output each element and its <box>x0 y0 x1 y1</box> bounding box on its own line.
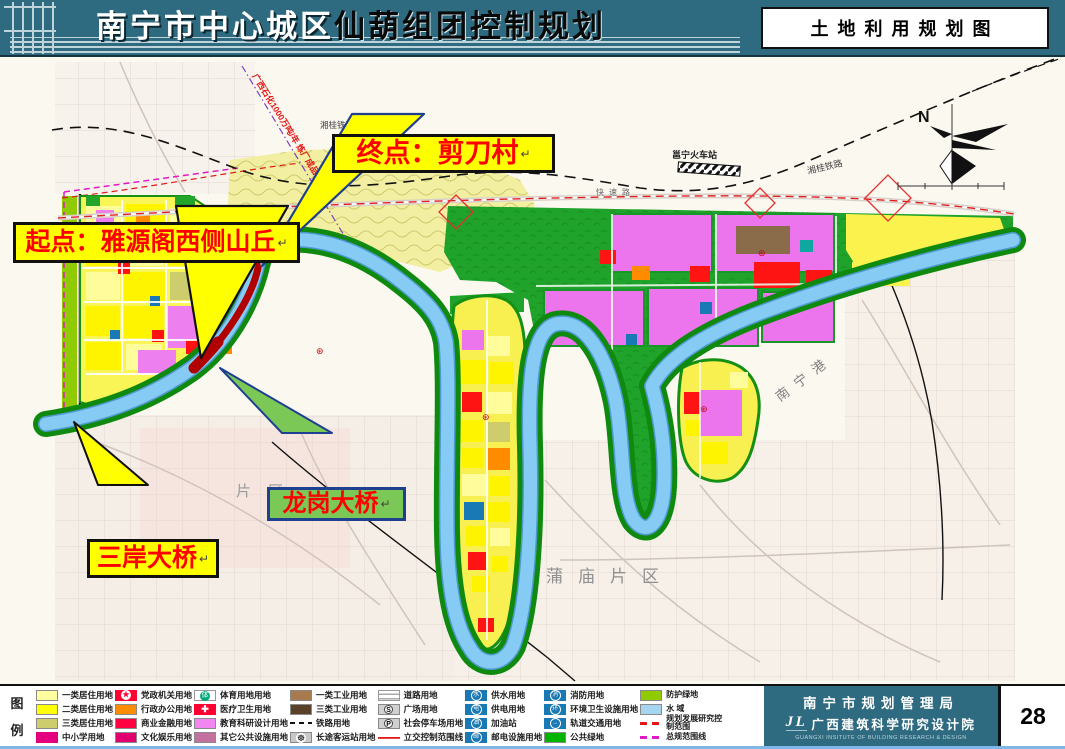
railway-station-label: 邕宁火车站 <box>672 149 717 160</box>
legend-label: 立交控制范围线 <box>404 731 464 743</box>
svg-text:⊛: ⊛ <box>700 404 708 414</box>
legend-swatch-glyph: 消 <box>550 690 561 701</box>
north-label: N <box>918 109 930 126</box>
legend-label: 消防用地 <box>570 689 604 701</box>
institute-name-en: GUANGXI INSITUTE OF BUILDING RESEARCH & … <box>795 735 967 741</box>
legend-label: 水 域 <box>666 705 728 713</box>
legend-swatch <box>290 704 312 715</box>
map-area: 广西石化1000万吨/年 炼厂成品油管线 N 邕宁火车站 湘桂铁路 湘桂铁路 <box>0 57 1065 684</box>
legend-item: P 社会停车场用地 <box>378 716 464 730</box>
legend-swatch <box>640 690 662 701</box>
legend-bar: 图 例 一类居住用地 二类居住用地 三类居住用地 ⊛⊛ 中小学用地 ★ 党政机关… <box>0 684 1065 746</box>
legend-column: 一类工业用地 三类工业用地 铁路用地 ☸ 长途客运站用地 <box>290 688 376 744</box>
legend-swatch: ⊛⊛ <box>36 732 58 743</box>
legend-item: 文化娱乐用地 <box>115 730 192 744</box>
page-number: 28 <box>1020 703 1046 730</box>
legend-swatch <box>36 704 58 715</box>
legend-item: 二类居住用地 <box>36 702 113 716</box>
return-mark: ↵ <box>199 553 209 565</box>
legend-swatch: 体 <box>194 690 216 701</box>
legend-label: 供电用地 <box>491 703 525 715</box>
legend-swatch-glyph: 环 <box>550 704 561 715</box>
legend-item: 三类工业用地 <box>290 702 376 716</box>
legend-swatch-glyph: ☸ <box>296 733 306 743</box>
legend-swatch-glyph: ✚ <box>194 704 216 715</box>
legend-item: S 广场用地 <box>378 702 464 716</box>
legend-swatch <box>36 690 58 701</box>
legend-label: 医疗卫生用地 <box>220 703 271 715</box>
legend-title-char: 例 <box>10 720 23 739</box>
legend-label: 防护绿地 <box>666 691 728 699</box>
legend-swatch: ☸ <box>290 732 312 743</box>
legend-item: 总规范围线 <box>640 730 728 744</box>
legend-swatch: 电 <box>465 704 487 715</box>
legend-swatch <box>115 732 137 743</box>
page-title-part2: 仙葫组团控制规划 <box>334 9 606 44</box>
legend-swatch-glyph: ★ <box>121 690 131 700</box>
agency-panel: 南宁市规划管理局 JL 广西建筑科学研究设计院 GUANGXI INSITUTE… <box>764 686 998 746</box>
legend-item: 环 环境卫生设施用地 <box>544 702 638 716</box>
legend-swatch <box>194 718 216 729</box>
legend-label: 铁路用地 <box>316 717 350 729</box>
southeast-district <box>679 360 760 481</box>
legend-label: 其它公共设施用地 <box>220 731 288 743</box>
legend-swatch: 水 <box>465 690 487 701</box>
legend-swatch-glyph: 电 <box>471 704 482 715</box>
legend-label: 社会停车场用地 <box>404 717 464 729</box>
callout-sanan-bridge-text: 三岸大桥 <box>97 546 197 571</box>
legend-item: 体 体育用地用地 <box>194 688 288 702</box>
legend-label: 道路用地 <box>404 689 438 701</box>
legend-swatch-glyph: 水 <box>471 690 482 701</box>
callout-start-point: 起点：雅源阁西侧山丘↵ <box>13 222 300 263</box>
legend-label: 一类工业用地 <box>316 689 367 701</box>
callout-end-point-text: 终点：剪刀村 <box>356 140 518 167</box>
legend-item: 其它公共设施用地 <box>194 730 288 744</box>
page-title-part1: 南宁市中心城区 <box>96 9 334 44</box>
callout-longgang-bridge: 龙岗大桥↵ <box>267 487 406 521</box>
page: 南宁市中心城区仙葫组团控制规划 土地利用规划图 <box>0 0 1065 749</box>
legend-swatch-glyph: 油 <box>471 718 482 729</box>
legend-columns: 一类居住用地 二类居住用地 三类居住用地 ⊛⊛ 中小学用地 ★ 党政机关用地 行… <box>34 686 764 746</box>
legend-swatch: 环 <box>544 704 566 715</box>
legend-label: 总规范围线 <box>666 733 728 741</box>
legend-swatch <box>640 732 662 743</box>
legend-column: 道路用地 S 广场用地 P 社会停车场用地 立交控制范围线 <box>378 688 464 744</box>
legend-swatch-glyph: P <box>384 719 393 728</box>
map-type-label-box: 土地利用规划图 <box>761 7 1049 49</box>
legend-item: 消 消防用地 <box>544 688 638 702</box>
legend-swatch: 消 <box>544 690 566 701</box>
legend-swatch <box>290 718 312 729</box>
legend-item: 铁路用地 <box>290 716 376 730</box>
legend-label: 长途客运站用地 <box>316 731 376 743</box>
agency-name: 南宁市规划管理局 <box>803 692 959 712</box>
legend-item: 油 加油站 <box>465 716 542 730</box>
legend-label: 行政办公用地 <box>141 703 192 715</box>
legend-label: 规划发展研究控制范围 <box>666 715 728 732</box>
legend-swatch <box>640 718 662 729</box>
legend-item: 教育科研设计用地 <box>194 716 288 730</box>
legend-column: 水 供水用地 电 供电用地 油 加油站 邮 邮电设施用地 <box>465 688 542 744</box>
legend-item: ⊛⊛ 中小学用地 <box>36 730 113 744</box>
legend-swatch <box>194 732 216 743</box>
legend-label: 教育科研设计用地 <box>220 717 288 729</box>
legend-label: 商业金融用地 <box>141 717 192 729</box>
callout-sanan-bridge: 三岸大桥↵ <box>87 539 219 578</box>
legend-item: ✚ 医疗卫生用地 <box>194 702 288 716</box>
legend-label: 环境卫生设施用地 <box>570 703 638 715</box>
legend-label: 加油站 <box>491 717 517 729</box>
legend-item: 一类居住用地 <box>36 688 113 702</box>
legend-label: 三类居住用地 <box>62 717 113 729</box>
legend-label: 公共绿地 <box>570 731 604 743</box>
legend-label: 中小学用地 <box>62 731 105 743</box>
map-type-label: 土地利用规划图 <box>811 15 1000 41</box>
expressway-label: 快速路 <box>596 187 635 197</box>
legend-column: ★ 党政机关用地 行政办公用地 商业金融用地 文化娱乐用地 <box>115 688 192 744</box>
legend-item: 电 供电用地 <box>465 702 542 716</box>
callout-start-point-text: 起点：雅源阁西侧山丘 <box>25 230 275 255</box>
pumiao-district-label: 蒲庙片区 <box>546 567 674 586</box>
legend-swatch <box>290 690 312 701</box>
legend-swatch-glyph: 邮 <box>471 732 482 743</box>
legend-swatch <box>378 690 400 701</box>
svg-text:⊛: ⊛ <box>758 248 766 258</box>
legend-item: 道路用地 <box>378 688 464 702</box>
legend-swatch <box>544 732 566 743</box>
legend-item: 水 供水用地 <box>465 688 542 702</box>
legend-column: 防护绿地 水 域 规划发展研究控制范围 总规范围线 <box>640 688 728 744</box>
legend-item: 行政办公用地 <box>115 702 192 716</box>
legend-item: 防护绿地 <box>640 688 728 702</box>
legend-label: 轨道交通用地 <box>570 717 621 729</box>
svg-text:⊛: ⊛ <box>482 412 490 422</box>
legend-item: → 轨道交通用地 <box>544 716 638 730</box>
legend-swatch <box>378 732 400 743</box>
title-bar: 南宁市中心城区仙葫组团控制规划 土地利用规划图 <box>0 0 1065 57</box>
legend-label: 二类居住用地 <box>62 703 113 715</box>
institute-line: JL 广西建筑科学研究设计院 <box>786 714 977 733</box>
legend-item: 规划发展研究控制范围 <box>640 716 728 730</box>
legend-swatch-glyph: → <box>550 718 561 729</box>
legend-swatch: ✚ <box>194 704 216 715</box>
legend-column: 体 体育用地用地 ✚ 医疗卫生用地 教育科研设计用地 其它公共设施用地 <box>194 688 288 744</box>
legend-column: 消 消防用地 环 环境卫生设施用地 → 轨道交通用地 公共绿地 <box>544 688 638 744</box>
legend-label: 广场用地 <box>404 703 438 715</box>
return-mark: ↵ <box>380 498 390 510</box>
legend-swatch: ★ <box>115 690 137 701</box>
legend-swatch <box>115 704 137 715</box>
legend-swatch: 邮 <box>465 732 487 743</box>
legend-label: 三类工业用地 <box>316 703 367 715</box>
legend-swatch: → <box>544 718 566 729</box>
legend-item: 一类工业用地 <box>290 688 376 702</box>
legend-label: 党政机关用地 <box>141 689 192 701</box>
svg-text:⊛: ⊛ <box>316 346 324 356</box>
legend-title-char: 图 <box>10 693 23 712</box>
legend-item: 商业金融用地 <box>115 716 192 730</box>
legend-swatch <box>36 718 58 729</box>
legend-item: 公共绿地 <box>544 730 638 744</box>
institute-name: 广西建筑科学研究设计院 <box>811 714 976 733</box>
legend-label: 一类居住用地 <box>62 689 113 701</box>
legend-item: 三类居住用地 <box>36 716 113 730</box>
legend-item: 邮 邮电设施用地 <box>465 730 542 744</box>
legend-item: ☸ 长途客运站用地 <box>290 730 376 744</box>
institute-logo: JL <box>786 715 808 731</box>
legend-item: ★ 党政机关用地 <box>115 688 192 702</box>
legend-swatch-glyph: ⊛⊛ <box>36 732 58 743</box>
legend-swatch: S <box>378 704 400 715</box>
return-mark: ↵ <box>520 148 530 160</box>
legend-title: 图 例 <box>0 686 34 746</box>
legend-label: 邮电设施用地 <box>491 731 542 743</box>
legend-swatch-glyph: S <box>384 705 393 714</box>
legend-label: 文化娱乐用地 <box>141 731 192 743</box>
page-number-box: 28 <box>998 686 1065 746</box>
legend-swatch-glyph: 体 <box>200 691 210 701</box>
legend-swatch: 油 <box>465 718 487 729</box>
legend-swatch <box>115 718 137 729</box>
legend-column: 一类居住用地 二类居住用地 三类居住用地 ⊛⊛ 中小学用地 <box>36 688 113 744</box>
legend-item: 立交控制范围线 <box>378 730 464 744</box>
callout-end-point: 终点：剪刀村↵ <box>332 134 555 173</box>
callout-longgang-bridge-text: 龙岗大桥 <box>282 492 378 516</box>
legend-swatch <box>640 704 662 715</box>
page-title: 南宁市中心城区仙葫组团控制规划 <box>96 1 606 46</box>
legend-label: 供水用地 <box>491 689 525 701</box>
legend-swatch: P <box>378 718 400 729</box>
return-mark: ↵ <box>277 237 287 249</box>
legend-label: 体育用地用地 <box>220 689 271 701</box>
